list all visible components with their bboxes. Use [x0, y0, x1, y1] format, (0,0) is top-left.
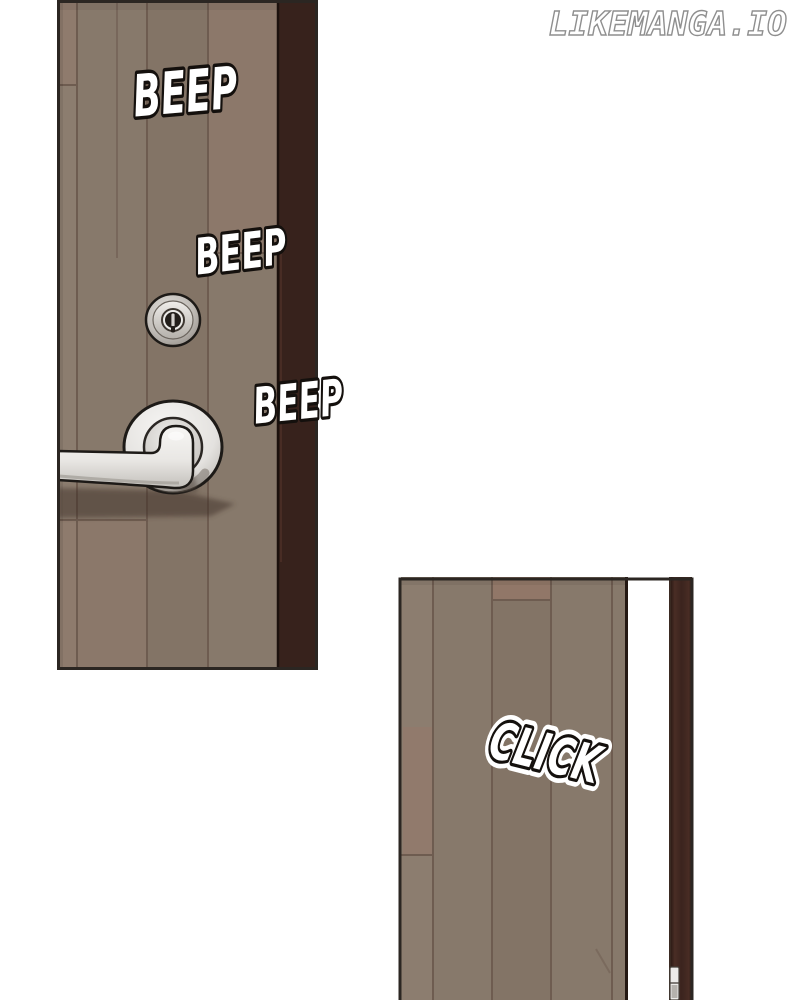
site-watermark: LIKEMANGA.IO [549, 4, 787, 43]
comic-page: LIKEMANGA.IO [0, 0, 800, 1000]
door-illustration [57, 0, 318, 670]
door-edge-illustration [398, 577, 694, 1000]
frame-inner-line [669, 577, 671, 1000]
deadbolt-lock-icon [146, 294, 200, 346]
panel-door-closeup [57, 0, 318, 670]
door-frame-strip [671, 577, 692, 1000]
door-leaf [401, 577, 628, 1000]
door-edge-strip [277, 0, 318, 670]
panel-door-opening [398, 577, 694, 1000]
open-gap [628, 577, 669, 1000]
door-hinge-icon [670, 967, 679, 1000]
door-right-edge [625, 577, 628, 1000]
